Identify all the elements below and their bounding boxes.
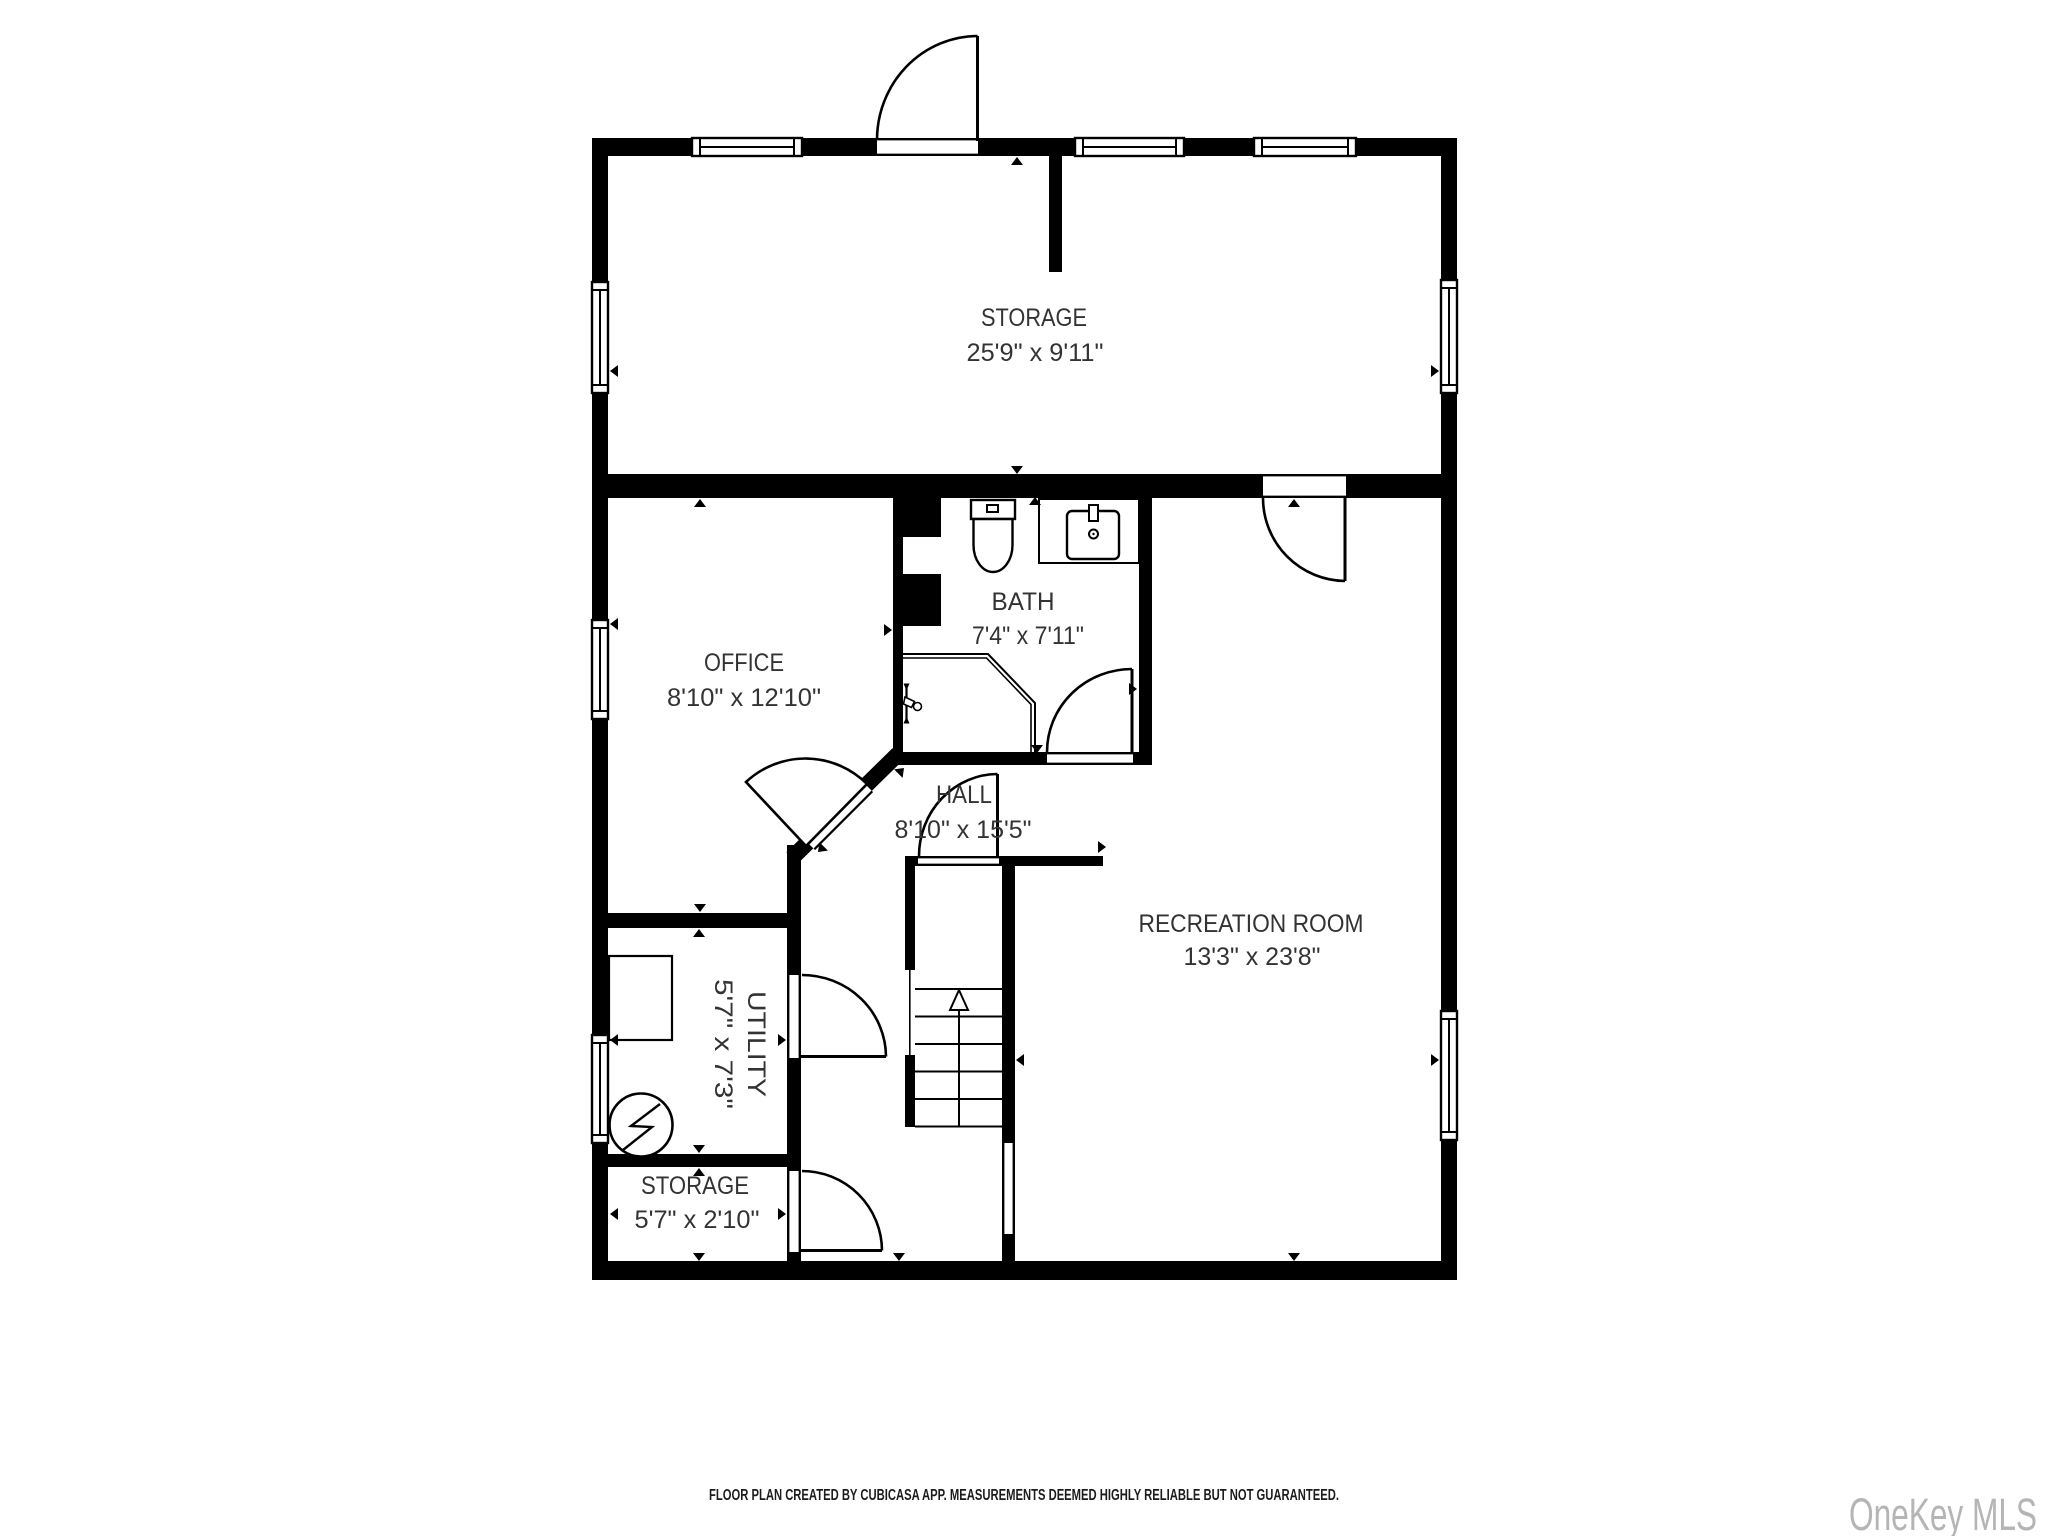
svg-text:OneKey MLS: OneKey MLS [1849, 1489, 2037, 1536]
svg-text:8'10" x 15'5": 8'10" x 15'5" [895, 816, 1032, 844]
svg-text:13'3" x 23'8": 13'3" x 23'8" [1184, 943, 1321, 971]
svg-text:RECREATION ROOM: RECREATION ROOM [1139, 910, 1364, 938]
svg-text:7'4" x 7'11": 7'4" x 7'11" [972, 622, 1084, 650]
svg-text:5'7" x 2'10": 5'7" x 2'10" [635, 1206, 760, 1234]
svg-text:5'7" x 7'3": 5'7" x 7'3" [709, 979, 737, 1109]
svg-text:STORAGE: STORAGE [641, 1172, 749, 1200]
svg-text:OFFICE: OFFICE [704, 649, 784, 677]
svg-text:STORAGE: STORAGE [981, 304, 1087, 332]
svg-text:8'10" x 12'10": 8'10" x 12'10" [667, 684, 821, 712]
svg-text:25'9" x 9'11": 25'9" x 9'11" [967, 339, 1104, 367]
svg-text:HALL: HALL [936, 781, 992, 809]
svg-text:BATH: BATH [992, 588, 1055, 616]
svg-text:FLOOR PLAN CREATED BY CUBICASA: FLOOR PLAN CREATED BY CUBICASA APP. MEAS… [709, 1487, 1339, 1504]
svg-text:UTILITY: UTILITY [742, 991, 770, 1097]
